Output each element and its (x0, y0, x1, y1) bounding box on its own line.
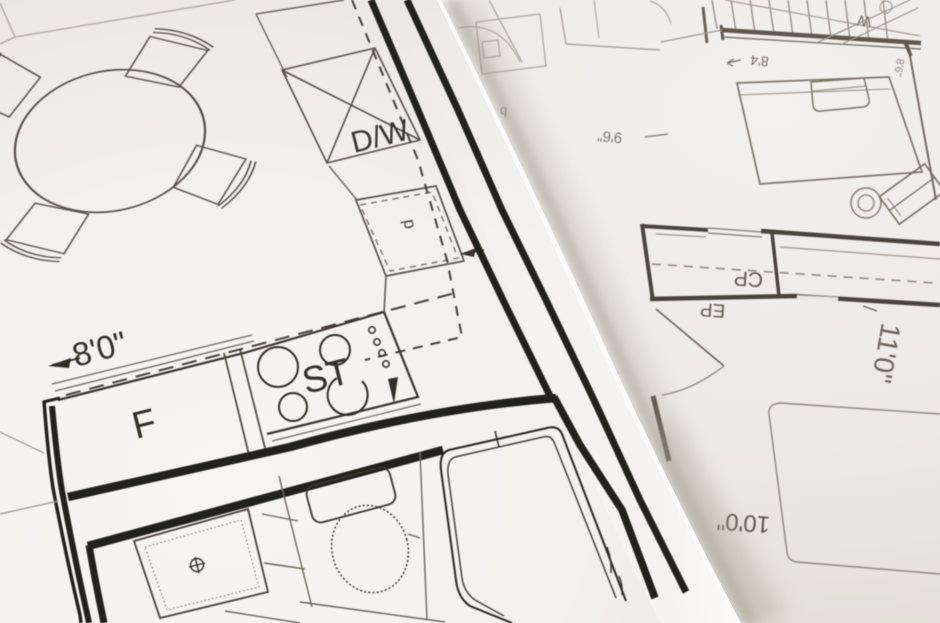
svg-text:9'6": 9'6" (597, 127, 623, 146)
svg-text:EP: EP (699, 298, 726, 321)
svg-text:CP: CP (733, 266, 764, 291)
svg-text:8'4: 8'4 (749, 52, 769, 70)
